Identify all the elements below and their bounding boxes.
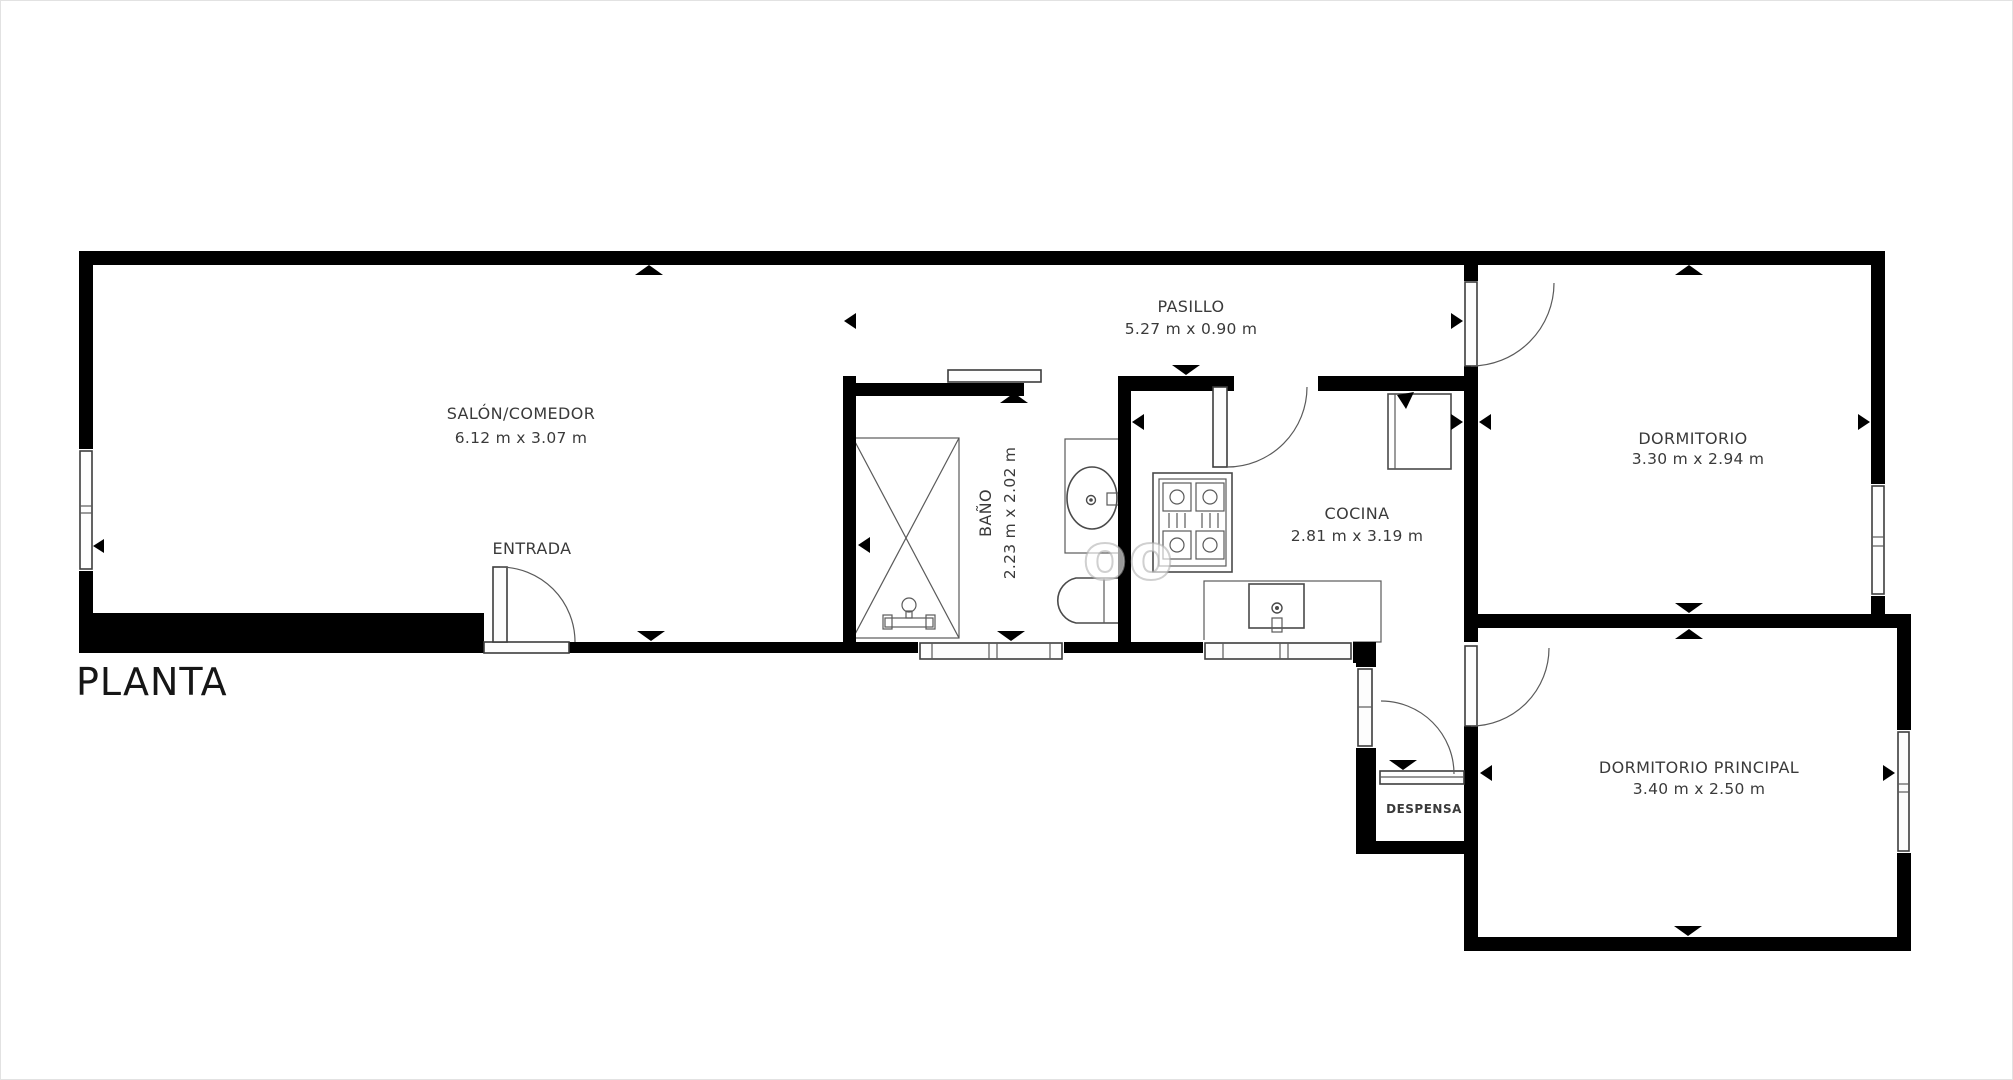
- plan-title: PLANTA: [76, 660, 228, 704]
- wall-bath-left: [843, 376, 856, 653]
- room-label-pasillo: PASILLO: [1157, 297, 1224, 316]
- kitchen-sink: [1204, 581, 1381, 642]
- wall-top: [79, 251, 1885, 265]
- wall-corridor-left-a: [1356, 653, 1376, 669]
- arrow-right-dorm-window: [1858, 414, 1870, 430]
- room-label-entrada: ENTRADA: [492, 539, 571, 558]
- door-principal: [1465, 646, 1549, 726]
- window-dormitorio: [1869, 484, 1887, 596]
- fridge: [1388, 394, 1451, 469]
- room-label-cocina: COCINA: [1325, 504, 1390, 523]
- door-entrada: [493, 567, 575, 642]
- wall-principal-bottom: [1464, 937, 1911, 951]
- door-cocina: [1213, 387, 1307, 467]
- room-dims-cocina: 2.81 m x 3.19 m: [1291, 527, 1424, 545]
- kitchen-fixtures: [1153, 394, 1451, 642]
- arrow-left-dorm-wall: [1479, 414, 1491, 430]
- wall-kitchen-top-right: [1318, 376, 1464, 391]
- room-label-despensa: DESPENSA: [1386, 802, 1462, 816]
- room-label-dormitorio: DORMITORIO: [1638, 429, 1747, 448]
- window-salon: [77, 449, 95, 571]
- arrow-up-dorm-top: [1675, 265, 1703, 275]
- arrow-right-principal-window: [1883, 765, 1895, 781]
- despensa-threshold: [1380, 771, 1464, 784]
- wall-bottom-left-block: [79, 613, 484, 653]
- room-label-principal: DORMITORIO PRINCIPAL: [1599, 758, 1799, 777]
- room-dims-bano: 2.23 m x 2.02 m: [1001, 447, 1019, 580]
- wall-corridor-left-b: [1356, 746, 1376, 854]
- wall-center-top: [1464, 251, 1478, 281]
- labels: SALÓN/COMEDOR 6.12 m x 3.07 m ENTRADA PA…: [76, 297, 1799, 816]
- wall-dorm-bottom: [1478, 614, 1911, 628]
- wall-center-bottom: [1464, 726, 1478, 951]
- window-kitchen-bottom: [1203, 640, 1353, 662]
- room-dims-principal: 3.40 m x 2.50 m: [1633, 780, 1766, 798]
- door-dormitorio: [1465, 282, 1554, 366]
- arrow-up-principal-top: [1675, 629, 1703, 639]
- wall-center-mid: [1464, 366, 1478, 642]
- room-dims-dormitorio: 3.30 m x 2.94 m: [1632, 450, 1765, 468]
- wall-bottom-mid: [1064, 642, 1203, 653]
- arrow-down-salon-bottom: [637, 631, 665, 641]
- room-label-bano: BAÑO: [976, 489, 995, 537]
- window-bath-bottom: [918, 640, 1064, 662]
- floorplan-image: oo SALÓN/COMEDOR 6.12 m x 3.07 m ENTRADA…: [0, 0, 2013, 1080]
- arrow-down-pasillo: [1172, 365, 1200, 375]
- wall-despensa-bottom: [1356, 841, 1478, 854]
- door-bano-sliding: [948, 370, 1041, 382]
- room-dims-pasillo: 5.27 m x 0.90 m: [1125, 320, 1258, 338]
- wall-bath-top: [843, 383, 1024, 396]
- arrow-down-principal-bottom: [1674, 926, 1702, 936]
- watermark: oo: [1083, 521, 1175, 595]
- arrow-down-despensa: [1389, 760, 1417, 770]
- entrance-threshold: [484, 642, 569, 653]
- floorplan-svg: oo SALÓN/COMEDOR 6.12 m x 3.07 m ENTRADA…: [1, 1, 2013, 1080]
- arrow-right-pasillo-end: [1451, 313, 1463, 329]
- walls: [79, 251, 1911, 951]
- arrow-right-cocina-wall: [1451, 414, 1463, 430]
- arrow-left-cocina-wall: [1132, 414, 1144, 430]
- room-label-salon: SALÓN/COMEDOR: [447, 404, 596, 423]
- window-corridor: [1354, 667, 1378, 748]
- arrow-down-dorm-bottom: [1675, 603, 1703, 613]
- door-despensa-arc: [1381, 701, 1454, 774]
- wall-bottom-salon: [569, 642, 918, 653]
- window-principal: [1895, 730, 1913, 853]
- wall-kitchen-left: [1118, 383, 1131, 642]
- room-dims-salon: 6.12 m x 3.07 m: [455, 429, 588, 447]
- arrow-left-bano-wall: [858, 537, 870, 553]
- arrow-left-pasillo: [844, 313, 856, 329]
- arrow-up-salon-top: [635, 265, 663, 275]
- arrow-down-bano-window: [997, 631, 1025, 641]
- arrow-left-principal-door: [1480, 765, 1492, 781]
- measure-arrows: [93, 265, 1895, 936]
